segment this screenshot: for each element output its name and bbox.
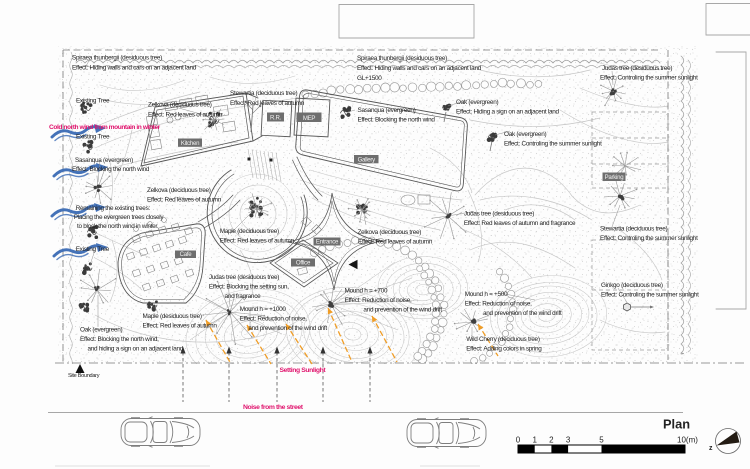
svg-text:Judas tree (desiduous tree): Judas tree (desiduous tree) <box>464 211 534 218</box>
svg-text:to block the north wind in win: to block the north wind in winter. <box>77 223 159 230</box>
svg-text:Cold north wind from mountain: Cold north wind from mountain in winter <box>49 124 161 131</box>
svg-text:Effect: Red leaves of autumn: Effect: Red leaves of autumn <box>148 112 223 119</box>
svg-text:Placing the evergreen trees cl: Placing the evergreen trees closely <box>74 214 165 221</box>
svg-text:Ginkgo (deciduous tree): Ginkgo (deciduous tree) <box>601 282 663 289</box>
svg-text:1: 1 <box>532 436 537 445</box>
svg-text:R.R.: R.R. <box>270 115 282 122</box>
svg-text:Mound h = +700: Mound h = +700 <box>345 288 388 295</box>
svg-text:and fragrance: and fragrance <box>225 293 262 300</box>
svg-text:Zelkova (deciduous tree): Zelkova (deciduous tree) <box>358 229 422 236</box>
svg-text:Effect: Reduction of noise,: Effect: Reduction of noise, <box>345 297 412 304</box>
svg-text:2: 2 <box>549 436 554 445</box>
svg-text:3: 3 <box>566 436 571 445</box>
svg-text:Parking: Parking <box>605 174 624 181</box>
svg-text:Effect: Blocking the north win: Effect: Blocking the north wind <box>358 117 436 124</box>
svg-text:Maple (deciduous tree): Maple (deciduous tree) <box>220 228 279 235</box>
svg-text:Effect: Reduction of noise,: Effect: Reduction of noise, <box>240 316 307 323</box>
svg-text:Stewartia (deciduous tree): Stewartia (deciduous tree) <box>230 90 297 97</box>
svg-text:Effect: Blocking the north win: Effect: Blocking the north wind <box>72 166 150 173</box>
svg-text:Plan: Plan <box>663 417 690 432</box>
svg-text:Oak (evergreen): Oak (evergreen) <box>80 327 122 334</box>
svg-text:Mound h = +500: Mound h = +500 <box>465 291 508 298</box>
svg-text:Effect: Controling the summer: Effect: Controling the summer sunlight <box>601 292 699 299</box>
svg-text:Oak (evergreen): Oak (evergreen) <box>504 131 546 138</box>
svg-text:and prevention of the wind dri: and prevention of the wind drift <box>483 310 562 317</box>
svg-text:Zelkova (deciduous tree): Zelkova (deciduous tree) <box>148 102 212 109</box>
svg-text:Site Boundary: Site Boundary <box>68 373 100 379</box>
svg-text:Effect: Blocking the setting s: Effect: Blocking the setting sun, <box>209 284 289 291</box>
svg-text:Existing Tree: Existing Tree <box>76 134 110 141</box>
svg-text:Remaining the existing trees:: Remaining the existing trees: <box>76 205 151 212</box>
svg-text:Spiraea thunbergii (desiduous: Spiraea thunbergii (desiduous tree) <box>72 55 162 62</box>
svg-text:Existing Tree: Existing Tree <box>76 98 110 105</box>
svg-text:Effect: Red leaves of autumn: Effect: Red leaves of autumn <box>147 197 222 204</box>
svg-text:Effect: Controling the summer: Effect: Controling the summer sunlight <box>504 141 602 148</box>
svg-text:Effect: Hiding walls and cars: Effect: Hiding walls and cars on an adja… <box>72 65 197 72</box>
svg-text:MEP: MEP <box>303 115 316 122</box>
svg-text:5: 5 <box>599 436 604 445</box>
svg-text:Setting Sunlight: Setting Sunlight <box>280 367 327 374</box>
svg-text:Effect: Red leaves of autumn: Effect: Red leaves of autumn <box>143 323 218 330</box>
svg-text:Effect: Controling the summer: Effect: Controling the summer sunlight <box>600 75 698 82</box>
svg-text:Office: Office <box>296 260 311 267</box>
svg-text:GL+1500: GL+1500 <box>357 75 382 82</box>
svg-text:Effect: Hiding a sign on an ad: Effect: Hiding a sign on an adjacent lan… <box>456 109 560 116</box>
svg-text:Zelkova (deciduous tree): Zelkova (deciduous tree) <box>147 187 211 194</box>
svg-text:Maple (desiduous tree): Maple (desiduous tree) <box>143 313 202 320</box>
svg-text:0: 0 <box>516 436 521 445</box>
svg-text:Effect: Red leaves of autumn: Effect: Red leaves of autumn <box>230 100 305 107</box>
svg-text:Effect: Red leaves of autumn a: Effect: Red leaves of autumn and fragran… <box>464 220 576 227</box>
svg-text:Effect: Controling the summer: Effect: Controling the summer sunlight <box>600 235 698 242</box>
svg-text:Mound h = +1000: Mound h = +1000 <box>240 306 287 313</box>
svg-text:Judas tree (desiduous tree): Judas tree (desiduous tree) <box>209 274 279 281</box>
svg-text:Effect: Hiding walls and cars: Effect: Hiding walls and cars on an adja… <box>357 65 482 72</box>
svg-text:Effect: Red leaves of autumn: Effect: Red leaves of autumn <box>358 239 433 246</box>
svg-text:Gallery: Gallery <box>358 156 377 163</box>
svg-text:Cafe: Cafe <box>180 251 193 258</box>
svg-text:Effect: Blocking the north win: Effect: Blocking the north wind, <box>80 336 159 343</box>
svg-text:Sasanqua (evergreen): Sasanqua (evergreen) <box>75 157 133 164</box>
svg-text:Stewartia (deciduous tree): Stewartia (deciduous tree) <box>600 226 667 233</box>
svg-text:Entrance: Entrance <box>316 239 339 246</box>
svg-text:Kitchen: Kitchen <box>181 140 199 147</box>
svg-text:Wild Cherry (deciduous tree): Wild Cherry (deciduous tree) <box>466 336 540 343</box>
svg-text:Existing Tree: Existing Tree <box>76 246 110 253</box>
svg-text:and prevention of the wind dri: and prevention of the wind drift <box>363 307 442 314</box>
svg-text:and prevention of the wind dri: and prevention of the wind drift <box>248 325 327 332</box>
svg-text:Spiraea thunbergii (desiduous: Spiraea thunbergii (desiduous tree) <box>357 55 447 62</box>
svg-text:Oak (evergreen): Oak (evergreen) <box>456 99 498 106</box>
svg-text:Noise from the street: Noise from the street <box>243 404 304 411</box>
svg-text:10(m): 10(m) <box>677 436 698 445</box>
svg-text:Effect: Reduction of noise,: Effect: Reduction of noise, <box>465 301 532 308</box>
svg-text:Judas tree (desiduous tree): Judas tree (desiduous tree) <box>602 65 672 72</box>
svg-text:Effect: Adding colors in sprin: Effect: Adding colors in spring <box>466 346 542 353</box>
svg-text:and hiding a sign on an adjace: and hiding a sign on an adjacent land <box>88 346 184 353</box>
svg-text:Sasanqua (evergreen): Sasanqua (evergreen) <box>358 107 416 114</box>
svg-text:Effect: Red leaves of autumn: Effect: Red leaves of autumn <box>220 238 295 245</box>
